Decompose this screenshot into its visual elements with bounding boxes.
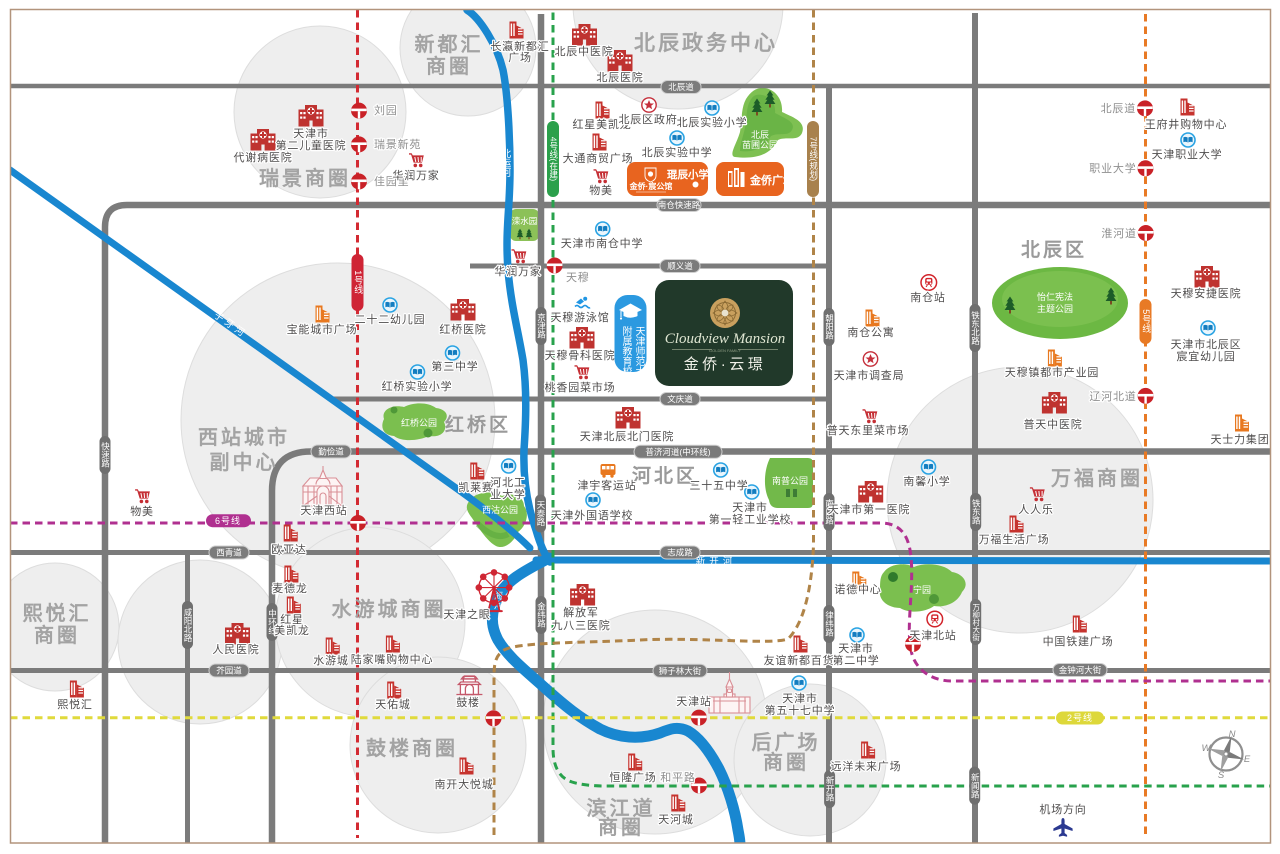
svg-text:天津职业大学: 天津职业大学	[1152, 147, 1223, 161]
svg-text:天津市: 天津市	[838, 641, 873, 655]
svg-text:刘园: 刘园	[374, 104, 398, 117]
svg-text:红桥实验小学: 红桥实验小学	[382, 379, 453, 393]
svg-text:普济河道(中环线): 普济河道(中环线)	[645, 447, 710, 457]
svg-text:天津市南仓中学: 天津市南仓中学	[561, 236, 644, 250]
svg-text:Cloudview Mansion: Cloudview Mansion	[665, 331, 785, 347]
svg-text:职业大学: 职业大学	[1089, 161, 1136, 175]
svg-text:河北区: 河北区	[632, 465, 698, 487]
svg-text:天士力集团: 天士力集团	[1211, 432, 1270, 446]
svg-text:长瀛新都汇: 长瀛新都汇	[491, 39, 550, 53]
svg-text:瑞景商圈: 瑞景商圈	[259, 166, 351, 190]
svg-text:金钟河大街: 金钟河大街	[1059, 665, 1102, 675]
svg-text:天津市: 天津市	[293, 126, 328, 140]
svg-text:北运河: 北运河	[500, 149, 512, 178]
svg-text:天津市: 天津市	[732, 500, 767, 514]
svg-text:二十二幼儿园: 二十二幼儿园	[355, 312, 426, 326]
svg-text:普天中医院: 普天中医院	[1024, 417, 1083, 431]
svg-text:南馨小学: 南馨小学	[903, 474, 950, 488]
svg-text:万福商圈: 万福商圈	[1050, 466, 1143, 490]
svg-text:商圈: 商圈	[763, 750, 809, 774]
svg-text:南仓公寓: 南仓公寓	[847, 325, 894, 339]
svg-text:朝阳路: 朝阳路	[825, 314, 835, 340]
svg-text:铁东北路: 铁东北路	[971, 310, 981, 346]
svg-text:恒隆广场: 恒隆广场	[609, 770, 656, 784]
svg-text:宝能城市广场: 宝能城市广场	[287, 322, 358, 336]
svg-text:天津之眼: 天津之眼	[443, 607, 490, 621]
svg-text:辽河北道: 辽河北道	[1089, 389, 1136, 403]
svg-text:天穆骨科医院: 天穆骨科医院	[545, 348, 616, 362]
svg-text:天津西站: 天津西站	[300, 503, 347, 517]
svg-text:咸阳北路: 咸阳北路	[183, 607, 193, 643]
svg-text:天泰路: 天泰路	[536, 501, 546, 527]
svg-text:商圈: 商圈	[34, 623, 80, 647]
svg-text:商圈: 商圈	[426, 54, 472, 78]
svg-text:九八三医院: 九八三医院	[552, 618, 611, 632]
svg-text:普天东里菜市场: 普天东里菜市场	[827, 423, 910, 437]
svg-text:4号线(在建): 4号线(在建)	[549, 137, 559, 182]
svg-text:琨辰小学: 琨辰小学	[667, 168, 709, 181]
svg-text:2号线: 2号线	[1067, 712, 1093, 723]
svg-text:熙悦汇: 熙悦汇	[57, 697, 92, 711]
svg-text:华润万家: 华润万家	[392, 168, 439, 182]
svg-text:京津路: 京津路	[537, 313, 547, 340]
svg-text:金侨·宸公馆: 金侨·宸公馆	[629, 181, 673, 191]
svg-text:北辰实验小学: 北辰实验小学	[677, 115, 748, 129]
svg-text:华润万家: 华润万家	[494, 264, 541, 278]
svg-text:金侨·云璟: 金侨·云璟	[684, 356, 767, 373]
svg-text:物美: 物美	[130, 504, 154, 518]
svg-text:水游城商圈: 水游城商圈	[332, 597, 447, 621]
svg-text:天津师范大学: 天津师范大学	[633, 326, 645, 386]
svg-text:苗圃公园: 苗圃公园	[742, 140, 778, 150]
svg-text:红桥区: 红桥区	[445, 413, 511, 436]
svg-text:中国铁建广场: 中国铁建广场	[1043, 634, 1114, 648]
svg-text:N: N	[1229, 729, 1236, 740]
svg-text:天津北辰北门医院: 天津北辰北门医院	[580, 429, 674, 443]
svg-text:南普公园: 南普公园	[772, 475, 808, 486]
svg-text:W: W	[1202, 743, 1212, 754]
svg-text:天河城: 天河城	[658, 813, 693, 826]
svg-text:王府井购物中心: 王府井购物中心	[1145, 117, 1228, 131]
svg-text:滦水园: 滦水园	[512, 216, 538, 226]
svg-text:北辰实验中学: 北辰实验中学	[642, 145, 713, 159]
svg-text:天穆镇都市产业园: 天穆镇都市产业园	[1005, 365, 1099, 379]
svg-text:附属教育校群: 附属教育校群	[620, 325, 632, 387]
svg-text:万福生活广场: 万福生活广场	[979, 532, 1050, 546]
svg-text:天佑城: 天佑城	[375, 697, 410, 711]
svg-text:代谢病医院: 代谢病医院	[234, 150, 293, 164]
svg-text:天津北站: 天津北站	[909, 628, 956, 642]
svg-text:熙悦汇: 熙悦汇	[23, 601, 92, 625]
svg-text:红桥医院: 红桥医院	[439, 322, 486, 336]
svg-text:和平路: 和平路	[660, 771, 695, 784]
svg-text:人民医院: 人民医院	[212, 642, 259, 656]
svg-text:北辰中医院: 北辰中医院	[555, 44, 614, 58]
svg-text:北辰: 北辰	[751, 130, 769, 140]
svg-text:北辰区政府: 北辰区政府	[619, 112, 678, 126]
svg-text:凯莱赛: 凯莱赛	[458, 480, 493, 494]
svg-text:大通商贸广场: 大通商贸广场	[563, 151, 634, 165]
svg-text:南仓快速路: 南仓快速路	[658, 200, 701, 210]
svg-text:天津站: 天津站	[676, 694, 711, 708]
svg-text:西站城市: 西站城市	[198, 425, 290, 449]
svg-text:狮子林大街: 狮子林大街	[659, 666, 702, 676]
svg-text:第二儿童医院: 第二儿童医院	[276, 138, 347, 152]
svg-text:麦德龙: 麦德龙	[272, 581, 307, 595]
svg-text:西沽公园: 西沽公园	[482, 504, 518, 515]
svg-text:主题公园: 主题公园	[1037, 303, 1073, 314]
svg-text:北辰道: 北辰道	[1101, 101, 1136, 115]
svg-text:业大学: 业大学	[490, 487, 525, 501]
svg-text:志成路: 志成路	[667, 548, 693, 558]
svg-text:三十五中学: 三十五中学	[690, 478, 749, 492]
svg-text:副中心: 副中心	[210, 450, 279, 474]
svg-text:第一轻工业学校: 第一轻工业学校	[709, 512, 792, 526]
svg-text:天穆: 天穆	[566, 270, 590, 284]
svg-text:金侨广场: 金侨广场	[749, 173, 794, 187]
svg-text:淮河道: 淮河道	[1101, 226, 1136, 240]
svg-text:北辰医院: 北辰医院	[596, 70, 643, 84]
svg-text:天津市: 天津市	[782, 691, 817, 705]
svg-text:物美: 物美	[589, 183, 613, 197]
svg-text:铁东路: 铁东路	[971, 499, 981, 526]
svg-text:新都汇: 新都汇	[415, 32, 484, 56]
svg-text:南仓站: 南仓站	[910, 290, 945, 304]
svg-text:人人乐: 人人乐	[1018, 503, 1053, 516]
svg-text:机场方向: 机场方向	[1039, 802, 1086, 816]
svg-text:1号线: 1号线	[353, 270, 363, 295]
svg-text:律纬路: 律纬路	[825, 611, 835, 638]
svg-text:新闻路: 新闻路	[970, 772, 980, 799]
svg-text:北辰道: 北辰道	[668, 82, 694, 92]
svg-text:鼓楼: 鼓楼	[456, 695, 480, 709]
svg-text:顺义道: 顺义道	[667, 261, 693, 271]
svg-text:后广场: 后广场	[752, 730, 821, 754]
svg-text:快速路: 快速路	[101, 442, 111, 469]
svg-text:万柳村大街: 万柳村大街	[971, 603, 980, 642]
svg-text:北辰政务中心: 北辰政务中心	[634, 31, 778, 55]
svg-text:宸宜幼儿园: 宸宜幼儿园	[1177, 349, 1236, 363]
svg-text:宁园: 宁园	[913, 584, 931, 595]
svg-text:E: E	[1244, 754, 1251, 765]
svg-text:文庆道: 文庆道	[667, 394, 693, 404]
svg-text:津宇客运站: 津宇客运站	[578, 478, 637, 492]
svg-text:天穆游泳馆: 天穆游泳馆	[551, 310, 610, 324]
svg-text:第三中学: 第三中学	[431, 359, 478, 373]
svg-text:远洋未来广场: 远洋未来广场	[831, 759, 902, 773]
svg-text:7号线(规划): 7号线(规划)	[809, 137, 819, 182]
svg-text:天穆安捷医院: 天穆安捷医院	[1171, 286, 1242, 300]
svg-text:瑞景新苑: 瑞景新苑	[374, 137, 421, 151]
svg-text:美凯龙: 美凯龙	[274, 624, 309, 637]
svg-text:新开河: 新开河	[696, 556, 737, 568]
svg-text:5号线: 5号线	[1141, 309, 1151, 334]
svg-text:芥园道: 芥园道	[216, 666, 242, 676]
svg-text:天津市北辰区: 天津市北辰区	[1171, 337, 1242, 351]
svg-text:6号线: 6号线	[215, 515, 241, 526]
svg-text:鼓楼商圈: 鼓楼商圈	[366, 736, 458, 760]
svg-text:第五十七中学: 第五十七中学	[765, 703, 836, 717]
svg-text:广场: 广场	[508, 50, 532, 64]
svg-text:解放军: 解放军	[563, 605, 598, 619]
svg-text:GOLDEN FAMILY: GOLDEN FAMILY	[709, 348, 741, 353]
svg-text:第二中学: 第二中学	[832, 653, 879, 667]
svg-text:南开大悦城: 南开大悦城	[435, 777, 494, 791]
svg-text:勤俭道: 勤俭道	[318, 447, 344, 457]
svg-text:友谊新都百货: 友谊新都百货	[764, 653, 835, 667]
svg-text:红桥公园: 红桥公园	[401, 417, 437, 428]
svg-text:诺德中心: 诺德中心	[834, 582, 881, 596]
svg-text:S: S	[1218, 770, 1225, 781]
svg-text:西青道: 西青道	[216, 548, 242, 558]
svg-text:新开路: 新开路	[825, 776, 835, 803]
svg-text:怡仁宪法: 怡仁宪法	[1037, 291, 1073, 302]
svg-text:桃香园菜市场: 桃香园菜市场	[545, 380, 616, 394]
svg-text:北辰区: 北辰区	[1021, 239, 1087, 261]
svg-text:天津市第一医院: 天津市第一医院	[828, 502, 911, 516]
svg-text:天津市调查局: 天津市调查局	[834, 368, 905, 382]
svg-text:金纬路: 金纬路	[537, 602, 547, 629]
svg-text:欧亚达: 欧亚达	[271, 543, 306, 556]
svg-text:商圈: 商圈	[598, 815, 644, 839]
svg-text:陆家嘴购物中心: 陆家嘴购物中心	[351, 652, 434, 666]
svg-text:水游城: 水游城	[313, 654, 348, 667]
svg-text:天津外国语学校: 天津外国语学校	[551, 508, 634, 522]
svg-text:河北工: 河北工	[490, 476, 525, 489]
